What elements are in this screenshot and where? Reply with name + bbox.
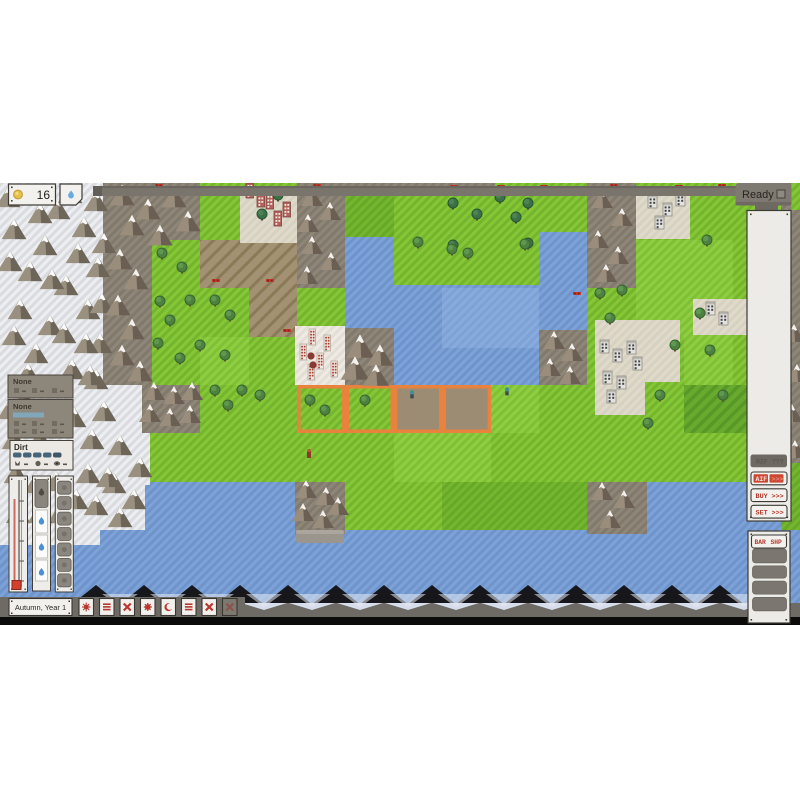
- svg-text:>>>: >>>: [772, 493, 784, 501]
- svg-text:None: None: [13, 377, 32, 386]
- svg-text:RZF: RZF: [756, 459, 768, 466]
- svg-text:BUY: BUY: [756, 493, 769, 501]
- svg-text:None: None: [13, 402, 32, 411]
- svg-text:AIF: AIF: [756, 476, 768, 483]
- svg-text:>>>: >>>: [772, 509, 784, 517]
- svg-text:Ready: Ready: [742, 189, 774, 201]
- svg-text:???: ???: [772, 459, 784, 466]
- svg-text:Dirt: Dirt: [14, 443, 28, 452]
- svg-text:SET: SET: [756, 509, 768, 517]
- svg-text:Autumn, Year 1: Autumn, Year 1: [15, 603, 66, 612]
- svg-text:16: 16: [37, 188, 51, 202]
- svg-text:BAR: BAR: [755, 539, 767, 546]
- svg-text:SHP: SHP: [771, 539, 783, 546]
- svg-text:>>>: >>>: [772, 476, 784, 483]
